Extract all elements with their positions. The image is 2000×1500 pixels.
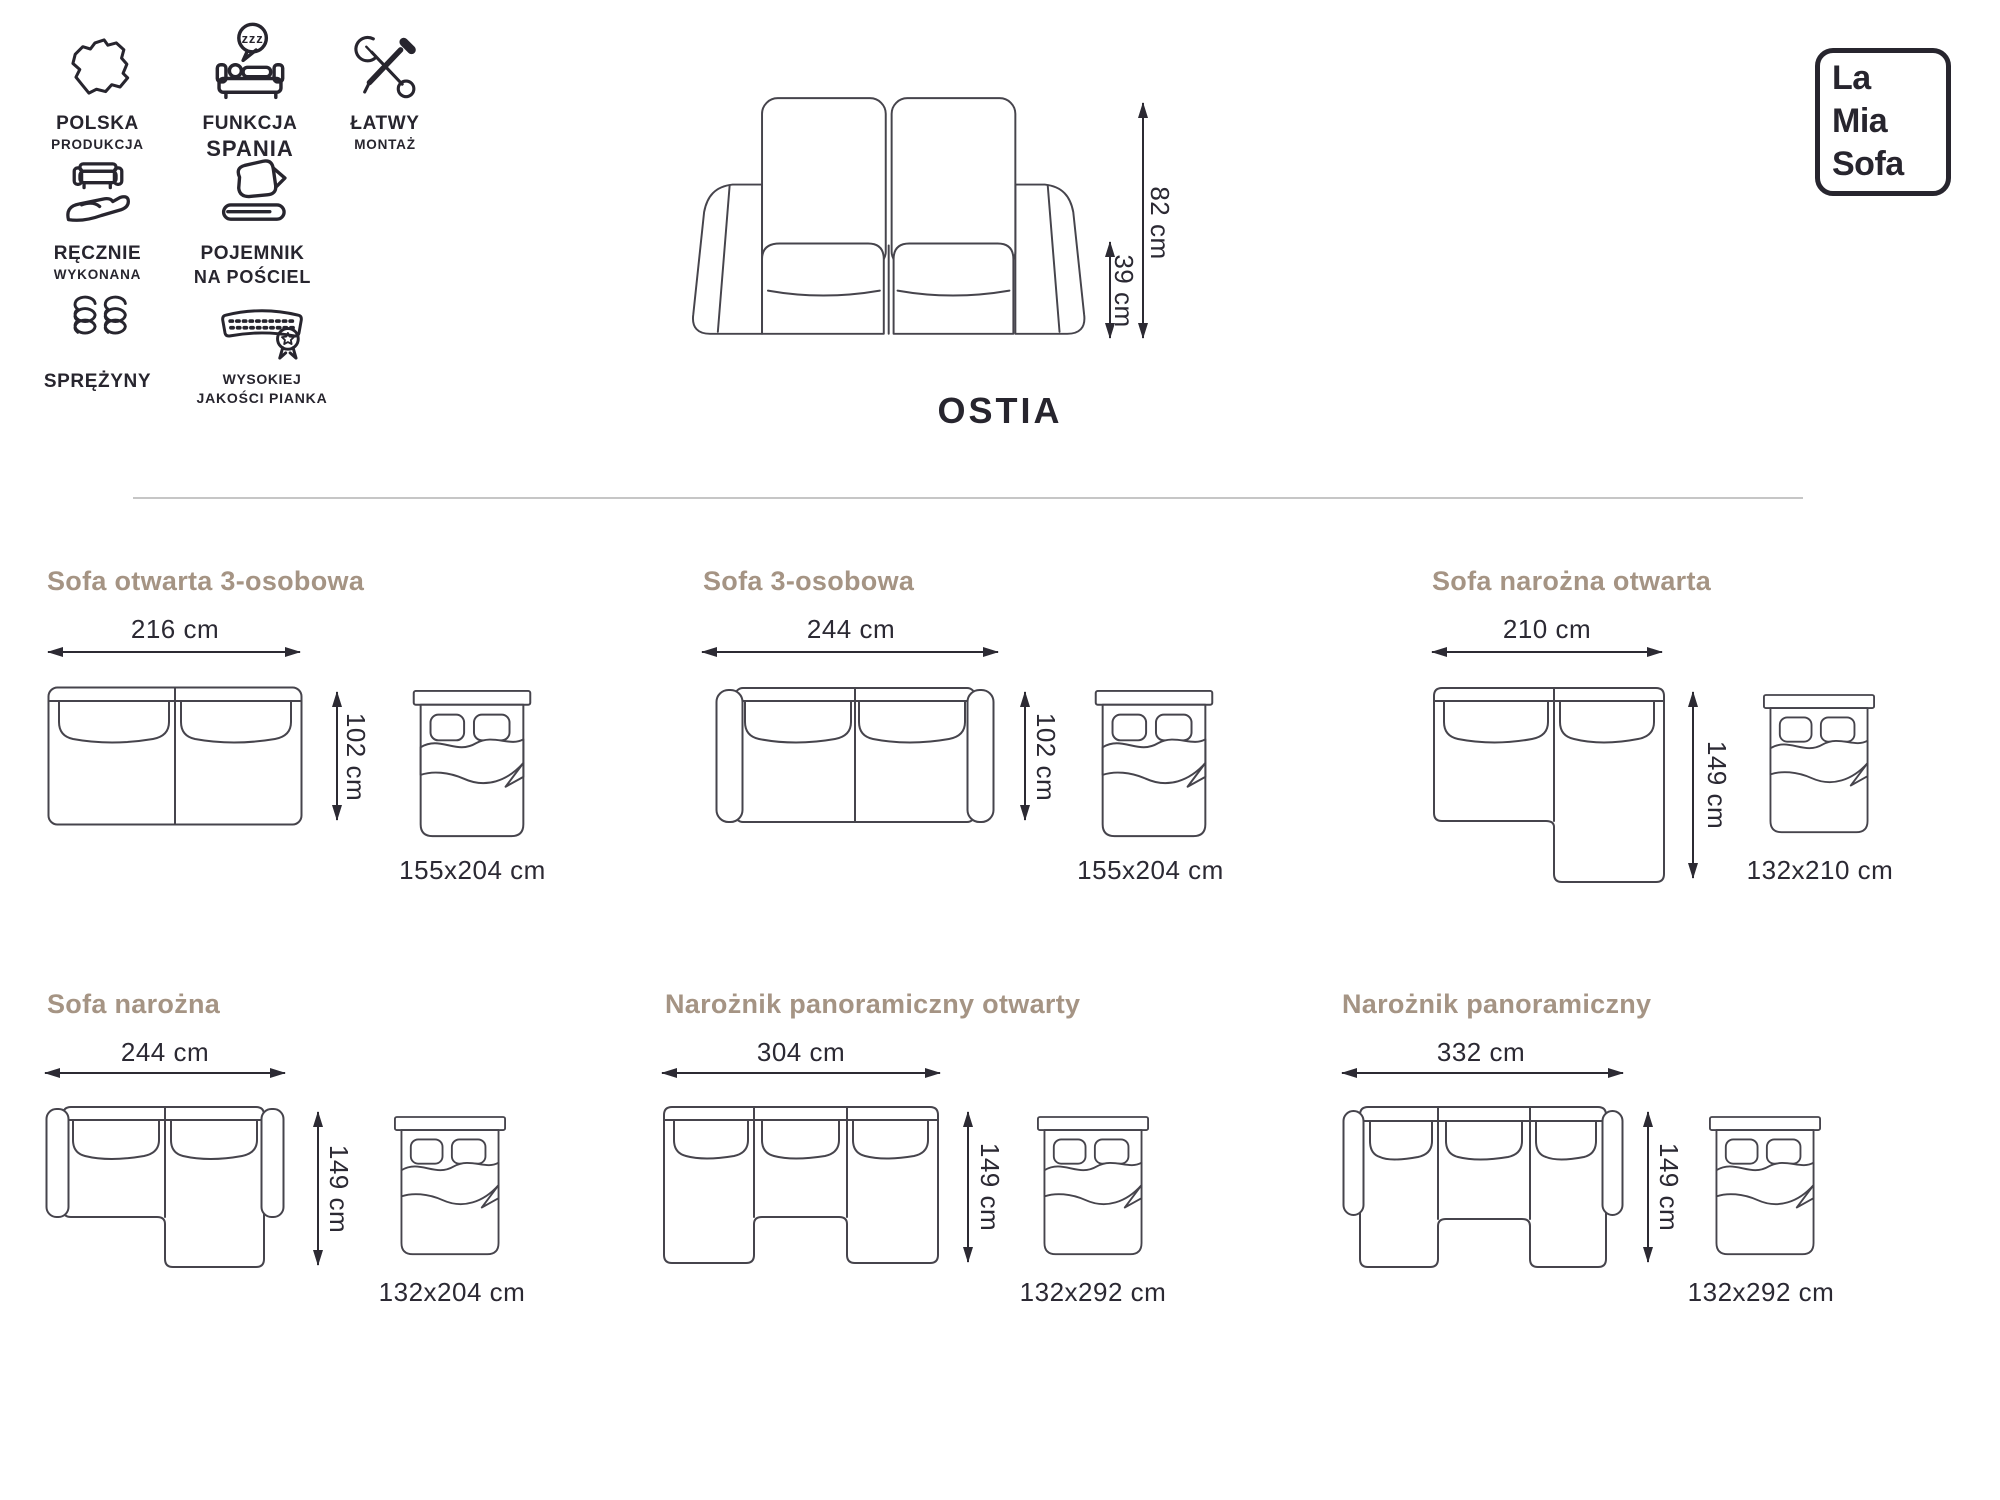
bed-icon bbox=[1763, 686, 1875, 844]
depth-arrow bbox=[317, 1112, 319, 1265]
feature-label: ŁATWY bbox=[325, 112, 445, 136]
bed-icon bbox=[394, 1108, 506, 1266]
feature-sublabel: PRODUKCJA bbox=[40, 136, 155, 154]
width-arrow bbox=[45, 1072, 285, 1074]
depth-label: 149 cm bbox=[325, 1124, 353, 1254]
width-label: 244 cm bbox=[776, 614, 926, 645]
config-title: Sofa 3-osobowa bbox=[703, 566, 914, 597]
width-arrow bbox=[1432, 651, 1662, 653]
bed-icon bbox=[1037, 1108, 1149, 1266]
feature-label: POJEMNIK bbox=[180, 242, 325, 266]
poland-map-icon bbox=[40, 28, 155, 106]
bed-size-label: 155x204 cm bbox=[395, 855, 550, 886]
feature-latwy-montaz: ŁATWY MONTAŻ bbox=[325, 28, 445, 154]
feature-pojemnik-na-posciel: POJEMNIK NA POŚCIEL bbox=[180, 158, 325, 289]
depth-label: 102 cm bbox=[342, 692, 370, 822]
width-arrow bbox=[1342, 1072, 1623, 1074]
bed-size-label: 155x204 cm bbox=[1073, 855, 1228, 886]
width-label: 210 cm bbox=[1472, 614, 1622, 645]
sleep-function-icon: zzz bbox=[180, 28, 320, 106]
width-arrow bbox=[662, 1072, 940, 1074]
width-arrow bbox=[48, 651, 300, 653]
feature-polska-produkcja: POLSKA PRODUKCJA bbox=[40, 28, 155, 154]
feature-recznie-wykonana: RĘCZNIE WYKONANA bbox=[40, 158, 155, 284]
config-title: Narożnik panoramiczny otwarty bbox=[665, 989, 1080, 1020]
feature-sublabel: WYKONANA bbox=[40, 266, 155, 284]
product-title: OSTIA bbox=[850, 390, 1150, 432]
brand-line: Mia bbox=[1832, 100, 1946, 143]
sofa-top-view-panoramic-armrests bbox=[1342, 1105, 1624, 1271]
bed-icon bbox=[1094, 686, 1214, 844]
brand-logo: La Mia Sofa bbox=[1815, 48, 1951, 196]
feature-sublabel: JAKOŚCI PIANKA bbox=[178, 389, 346, 408]
depth-label: 149 cm bbox=[1703, 720, 1731, 850]
depth-arrow bbox=[1024, 692, 1026, 820]
sofa-top-view-panoramic-open bbox=[662, 1105, 940, 1267]
feature-label: RĘCZNIE bbox=[40, 242, 155, 266]
feature-funkcja-spania: zzz FUNKCJA SPANIA bbox=[180, 28, 320, 162]
svg-text:zzz: zzz bbox=[242, 31, 264, 46]
total-height-arrow bbox=[1142, 103, 1144, 338]
feature-label: SPRĘŻYNY bbox=[40, 370, 155, 394]
hand-sofa-icon bbox=[40, 158, 155, 236]
sofa-top-view-corner-open bbox=[1432, 686, 1666, 884]
config-title: Sofa otwarta 3-osobowa bbox=[47, 566, 364, 597]
config-title: Sofa narożna bbox=[47, 989, 220, 1020]
depth-arrow bbox=[1692, 692, 1694, 878]
width-label: 304 cm bbox=[726, 1037, 876, 1068]
total-height-label: 82 cm bbox=[1146, 173, 1174, 273]
brand-line: La bbox=[1832, 57, 1946, 100]
brand-line: Sofa bbox=[1832, 143, 1946, 186]
width-label: 216 cm bbox=[100, 614, 250, 645]
feature-sprezyny: SPRĘŻYNY bbox=[40, 286, 155, 394]
bedding-storage-icon bbox=[180, 158, 325, 236]
feature-sublabel: MONTAŻ bbox=[325, 136, 445, 154]
config-title: Sofa narożna otwarta bbox=[1432, 566, 1711, 597]
bed-size-label: 132x292 cm bbox=[1681, 1277, 1841, 1308]
config-title: Narożnik panoramiczny bbox=[1342, 989, 1651, 1020]
feature-wysokiej-jakosci-pianka: WYSOKIEJ JAKOŚCI PIANKA bbox=[178, 286, 346, 408]
sofa-top-view-open-3seat bbox=[47, 686, 303, 826]
foam-quality-icon bbox=[178, 286, 346, 364]
sofa-front-view-drawing bbox=[656, 84, 1088, 346]
sofa-top-view-3seat-armrests bbox=[715, 686, 995, 826]
depth-arrow bbox=[967, 1112, 969, 1262]
bed-icon bbox=[412, 686, 532, 844]
width-arrow bbox=[702, 651, 998, 653]
depth-label: 149 cm bbox=[976, 1122, 1004, 1252]
feature-label: FUNKCJA bbox=[180, 112, 320, 136]
feature-label: WYSOKIEJ bbox=[178, 370, 346, 389]
width-label: 244 cm bbox=[90, 1037, 240, 1068]
spec-sheet: POLSKA PRODUKCJA zzz FUNKCJA SPANIA bbox=[0, 0, 2000, 1500]
bed-icon bbox=[1709, 1108, 1821, 1266]
bed-size-label: 132x292 cm bbox=[1013, 1277, 1173, 1308]
depth-arrow bbox=[336, 692, 338, 820]
depth-arrow bbox=[1647, 1112, 1649, 1262]
bed-size-label: 132x210 cm bbox=[1740, 855, 1900, 886]
springs-icon bbox=[40, 286, 155, 364]
depth-label: 102 cm bbox=[1032, 692, 1060, 822]
sofa-top-view-corner-armrests bbox=[45, 1105, 285, 1271]
seat-height-label: 39 cm bbox=[1110, 241, 1138, 341]
section-divider bbox=[133, 497, 1803, 499]
width-label: 332 cm bbox=[1406, 1037, 1556, 1068]
bed-size-label: 132x204 cm bbox=[372, 1277, 532, 1308]
tools-icon bbox=[325, 28, 445, 106]
feature-label: POLSKA bbox=[40, 112, 155, 136]
depth-label: 149 cm bbox=[1655, 1122, 1683, 1252]
